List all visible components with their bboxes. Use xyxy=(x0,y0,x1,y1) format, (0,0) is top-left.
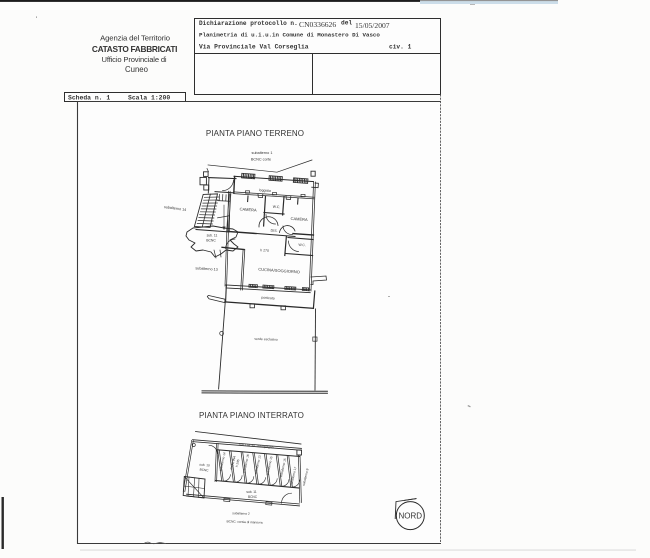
svg-text:verde esclusivo: verde esclusivo xyxy=(254,337,278,342)
svg-text:BCNC corte: BCNC corte xyxy=(251,158,271,162)
svg-text:Dichiarazione protocollo n.: Dichiarazione protocollo n. xyxy=(199,20,298,27)
svg-text:Planimetria di u.i.u.in Comune: Planimetria di u.i.u.in Comune di Monast… xyxy=(199,32,380,39)
svg-text:Via Provinciale Val Corseglia: Via Provinciale Val Corseglia xyxy=(199,43,309,50)
svg-text:BCNC: BCNC xyxy=(206,239,216,243)
svg-text:Agenzia del Territorio: Agenzia del Territorio xyxy=(100,34,170,43)
svg-text:Scheda n. 1: Scheda n. 1 xyxy=(68,95,110,102)
svg-text:h 270: h 270 xyxy=(260,248,269,253)
svg-text:BCNC: BCNC xyxy=(248,495,258,499)
svg-text:sub. 11: sub. 11 xyxy=(246,490,256,494)
svg-text:CN0336626: CN0336626 xyxy=(299,20,336,29)
svg-text:civ. 1: civ. 1 xyxy=(389,43,412,50)
svg-text:PIANTA PIANO TERRENO: PIANTA PIANO TERRENO xyxy=(206,129,304,138)
svg-text:PIANTA PIANO INTERRATO: PIANTA PIANO INTERRATO xyxy=(199,411,304,420)
svg-text:W.C.: W.C. xyxy=(273,205,281,210)
svg-text:Ufficio Provinciale di: Ufficio Provinciale di xyxy=(102,55,167,64)
svg-text:sub. 11: sub. 11 xyxy=(207,234,218,238)
svg-text:NORD: NORD xyxy=(399,512,423,521)
svg-text:Scala 1:200: Scala 1:200 xyxy=(128,95,170,102)
svg-text:W.C.: W.C. xyxy=(298,243,306,248)
svg-text:subalterno 2: subalterno 2 xyxy=(232,511,250,516)
svg-text:Cuneo: Cuneo xyxy=(125,65,149,74)
svg-text:subalterno 1: subalterno 1 xyxy=(252,151,273,155)
svg-text:15/05/2007: 15/05/2007 xyxy=(355,21,390,30)
svg-text:': ' xyxy=(36,17,37,23)
svg-text:loggiato: loggiato xyxy=(259,188,272,193)
svg-text:CATASTO FABBRICATI: CATASTO FABBRICATI xyxy=(92,44,177,54)
svg-text:DIS.: DIS. xyxy=(270,229,277,233)
svg-text:del: del xyxy=(341,20,352,27)
